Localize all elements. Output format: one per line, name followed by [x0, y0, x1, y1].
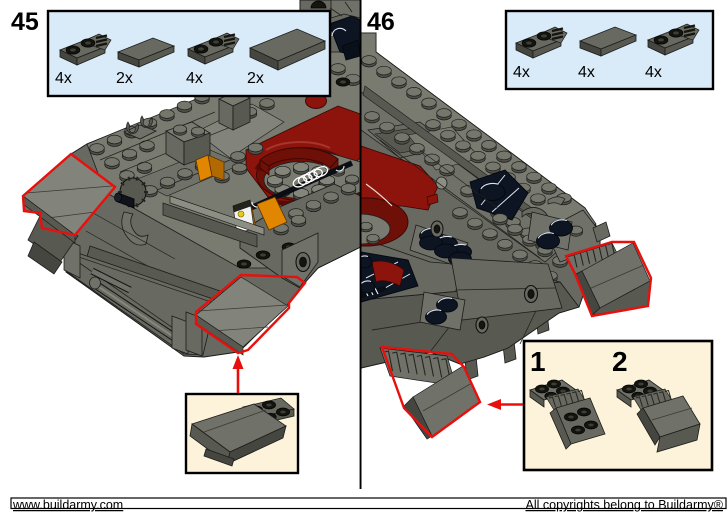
- svg-text:4x: 4x: [55, 70, 72, 87]
- svg-text:4x: 4x: [513, 64, 530, 81]
- svg-text:2: 2: [612, 346, 628, 377]
- svg-text:4x: 4x: [186, 70, 203, 87]
- svg-text:46: 46: [367, 8, 395, 36]
- svg-text:45: 45: [11, 8, 39, 36]
- svg-text:4x: 4x: [645, 64, 662, 81]
- svg-text:All copyrights belong to Build: All copyrights belong to Buildarmy®: [526, 498, 724, 512]
- svg-text:4x: 4x: [578, 64, 595, 81]
- svg-text:2x: 2x: [247, 70, 264, 87]
- svg-text:www.buildarmy.com: www.buildarmy.com: [12, 498, 123, 512]
- svg-text:1: 1: [530, 346, 546, 377]
- svg-text:2x: 2x: [116, 70, 133, 87]
